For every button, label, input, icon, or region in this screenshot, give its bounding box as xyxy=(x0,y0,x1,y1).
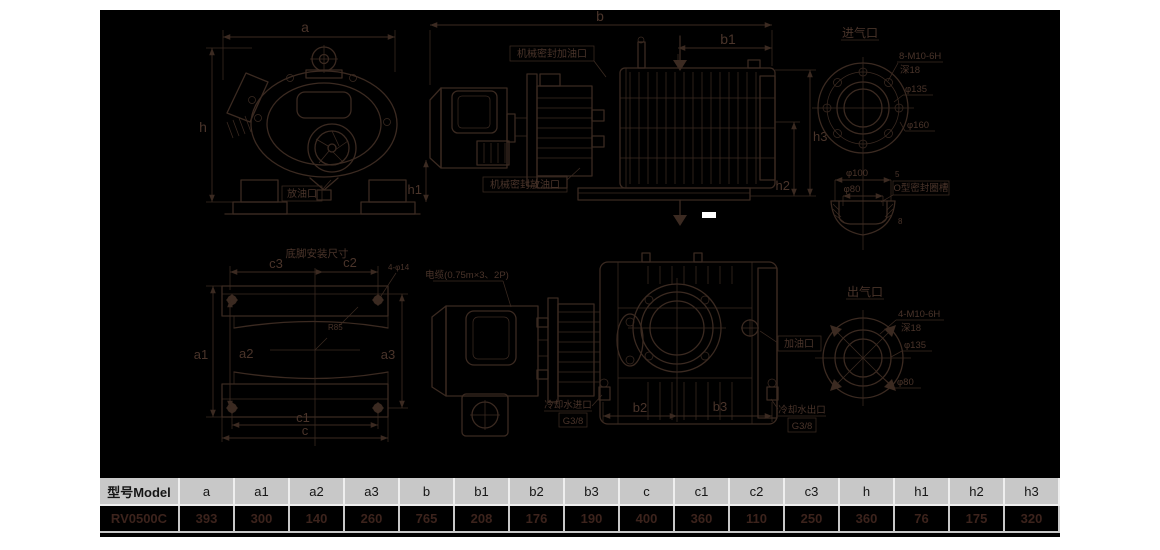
pump-fins xyxy=(620,72,775,184)
dim-label-a3: a3 xyxy=(381,347,395,362)
inlet-depth: 深18 xyxy=(900,65,920,76)
inlet-bolt-spec: 8-M10-6H xyxy=(899,51,941,62)
dim-label-h3: h3 xyxy=(813,129,827,144)
table-header-b2: b2 xyxy=(510,478,565,506)
outlet-dia-80: φ80 xyxy=(897,377,914,388)
table-header-h1: h1 xyxy=(895,478,950,506)
table-cell-h: 360 xyxy=(840,506,895,533)
page: a h xyxy=(0,0,1160,550)
dim-label-h1: h1 xyxy=(408,182,422,197)
table-cell-a3: 260 xyxy=(345,506,400,533)
table-cell-a2: 140 xyxy=(290,506,345,533)
water-in-thread: G3/8 xyxy=(563,416,584,427)
inlet-port-view: 进气口 8-M10-6H 深18 φ135 xyxy=(812,25,943,162)
table-cell-h2: 175 xyxy=(950,506,1005,533)
top-side-view: b b1 xyxy=(408,10,828,226)
table-header-b: b xyxy=(400,478,455,506)
front-view: a h xyxy=(199,19,420,214)
table-cell-b3: 190 xyxy=(565,506,620,533)
seal-drain-label: 机械密封放油口 xyxy=(490,178,560,191)
oil-fill-label: 加油口 xyxy=(784,337,814,350)
dim-label-h2: h2 xyxy=(776,178,790,193)
water-in-label: 冷却水进口 xyxy=(544,399,592,411)
table-header-model: 型号Model xyxy=(100,478,180,506)
table-header-a: a xyxy=(180,478,235,506)
outlet-port-view: 出气口 4-M10-6H 深18 φ135 φ8 xyxy=(815,284,944,406)
outlet-depth: 深18 xyxy=(901,323,921,334)
dim-label-c3: c3 xyxy=(269,256,283,271)
table-header-a1: a1 xyxy=(235,478,290,506)
dim-label-b: b xyxy=(596,10,604,24)
pump2-fins-top xyxy=(648,266,732,284)
dimension-table: 型号Model a a1 a2 a3 b b1 b2 b3 c c1 c2 c3… xyxy=(100,478,1060,533)
table-cell-b: 765 xyxy=(400,506,455,533)
inlet-title: 进气口 xyxy=(842,25,878,40)
outlet-bolt-spec: 4-M10-6H xyxy=(898,309,940,320)
table-cell-h3: 320 xyxy=(1005,506,1060,533)
table-cell-h1: 76 xyxy=(895,506,950,533)
table-header-h2: h2 xyxy=(950,478,1005,506)
drawing-panel: a h xyxy=(100,10,1060,537)
table-header-c: c xyxy=(620,478,675,506)
table-header-h: h xyxy=(840,478,895,506)
table-header-c3: c3 xyxy=(785,478,840,506)
technical-drawing: a h xyxy=(100,10,1060,478)
dim-label-b2: b2 xyxy=(633,400,647,415)
inlet-dia-160: φ160 xyxy=(907,120,929,131)
table-header-c1: c1 xyxy=(675,478,730,506)
table-cell-c: 400 xyxy=(620,506,675,533)
table-header-a2: a2 xyxy=(290,478,345,506)
dim-label-a: a xyxy=(301,19,309,35)
table-header-b1: b1 xyxy=(455,478,510,506)
water-out-label: 冷却水出口 xyxy=(778,404,826,416)
oring-dia-80: φ80 xyxy=(844,184,861,195)
table-cell-a1: 300 xyxy=(235,506,290,533)
water-out-thread: G3/8 xyxy=(792,421,813,432)
oring-groove-label: O型密封圈槽 xyxy=(894,182,949,194)
outlet-dia-135: φ135 xyxy=(904,340,926,351)
drain-port-label: 放油口 xyxy=(287,187,317,200)
oring-dia-100: φ100 xyxy=(846,168,868,179)
dim-label-c: c xyxy=(302,423,309,438)
table-header-c2: c2 xyxy=(730,478,785,506)
table-cell-a: 393 xyxy=(180,506,235,533)
cable-label: 电缆(0.75m×3、2P) xyxy=(425,269,509,281)
dim-label-b3: b3 xyxy=(713,399,727,414)
hole-spec-label: 4-φ14 xyxy=(388,263,410,272)
mask-artifact xyxy=(702,212,716,218)
oring-dim-5: 5 xyxy=(895,170,900,179)
foot-plan-title: 底脚安装尺寸 xyxy=(286,247,349,260)
table-header-b3: b3 xyxy=(565,478,620,506)
outlet-title: 出气口 xyxy=(847,284,883,299)
dim-label-c2: c2 xyxy=(343,255,357,270)
dim-label-h: h xyxy=(199,119,207,135)
table-cell-c1: 360 xyxy=(675,506,730,533)
foot-holes-top xyxy=(226,294,384,306)
dim-label-a2: a2 xyxy=(239,346,253,361)
table-cell-model: RV0500C xyxy=(100,506,180,533)
dim-label-b1: b1 xyxy=(720,31,736,47)
fillet-label: R85 xyxy=(328,323,343,332)
table-cell-c2: 110 xyxy=(730,506,785,533)
table-header-a3: a3 xyxy=(345,478,400,506)
table-cell-b1: 208 xyxy=(455,506,510,533)
table-cell-b2: 176 xyxy=(510,506,565,533)
dim-label-a1: a1 xyxy=(194,347,208,362)
seal-fill-label: 机械密封加油口 xyxy=(517,47,587,60)
oring-groove-section: φ100 φ80 5 O型密封圈槽 8 xyxy=(831,162,949,250)
inlet-dia-135: φ135 xyxy=(905,84,927,95)
table-cell-c3: 250 xyxy=(785,506,840,533)
oring-dim-8: 8 xyxy=(898,217,903,226)
foot-mounting-plan: 底脚安装尺寸 c3 c2 4-φ14 xyxy=(194,247,410,446)
table-header-h3: h3 xyxy=(1005,478,1060,506)
bottom-side-view: 电缆(0.75m×3、2P) xyxy=(425,253,826,436)
